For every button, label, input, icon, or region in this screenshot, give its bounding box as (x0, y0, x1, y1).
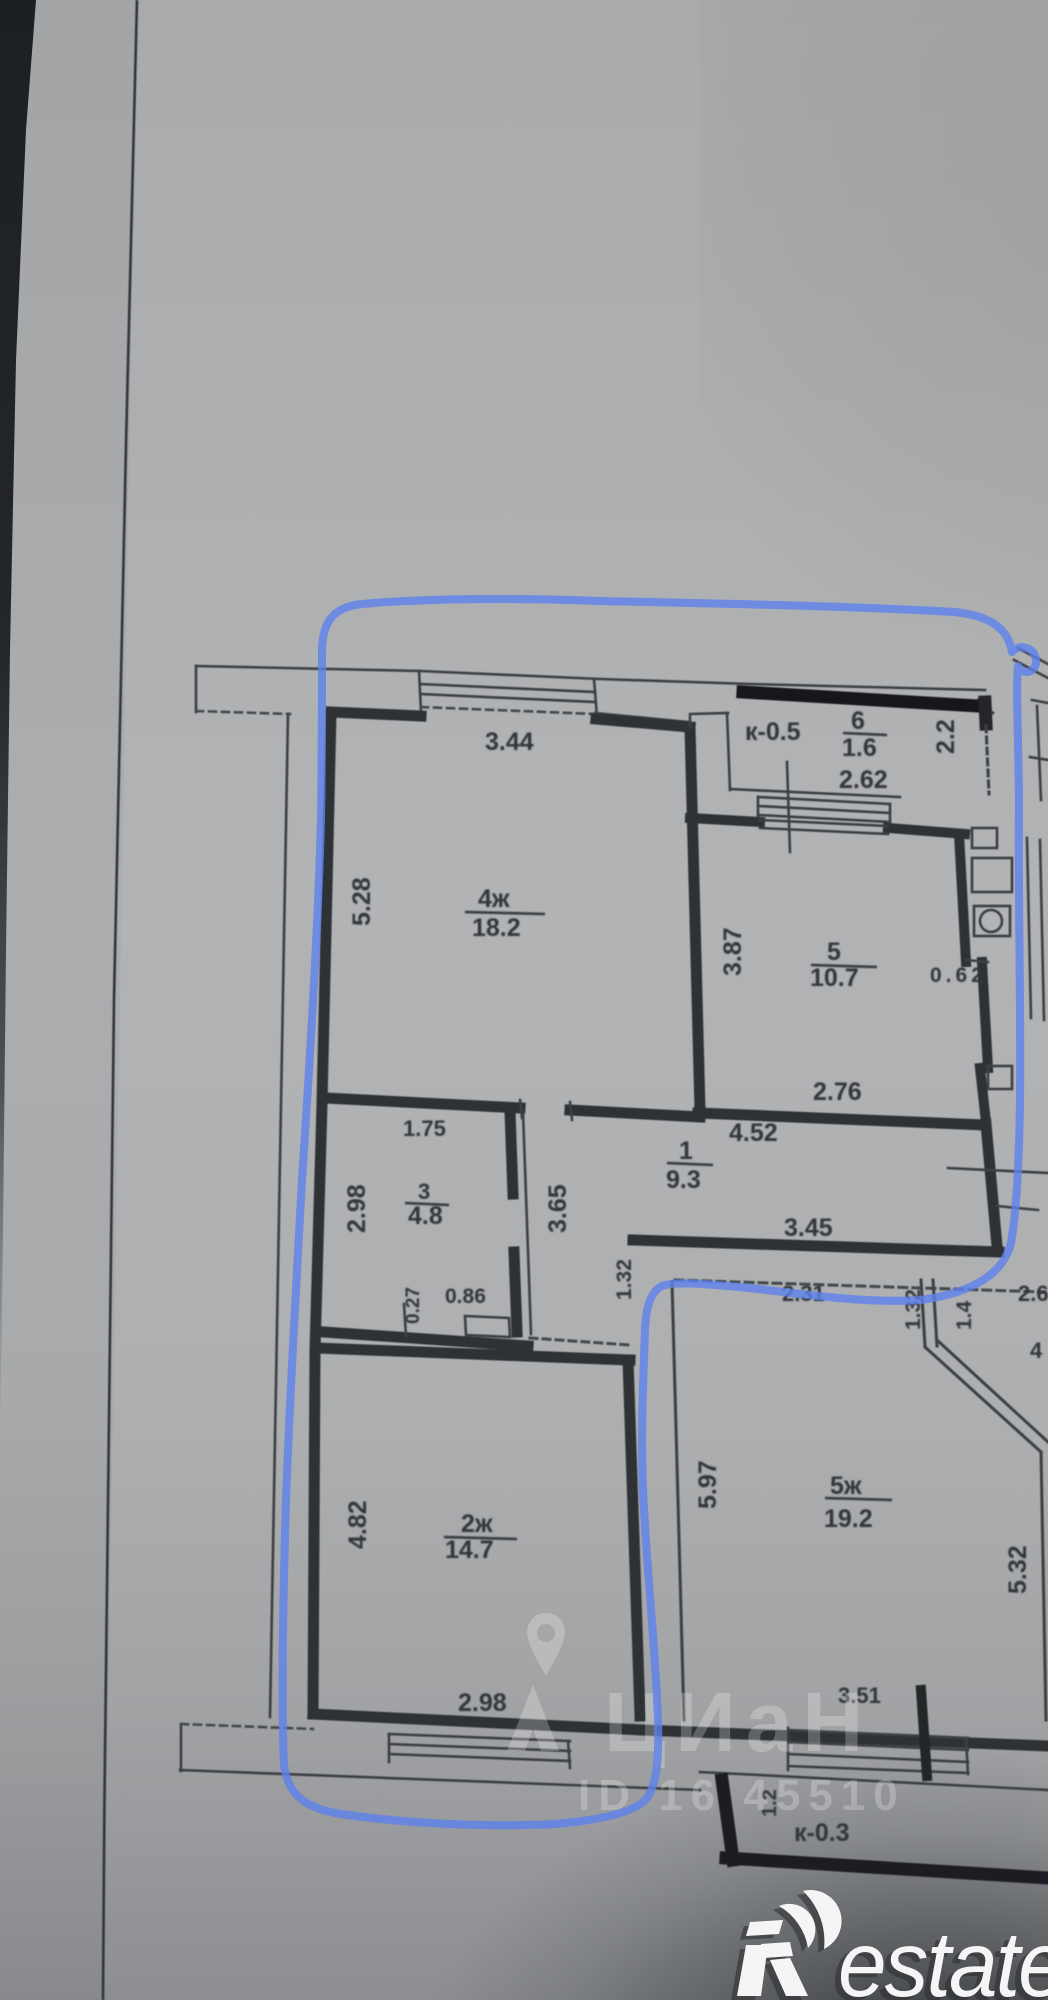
svg-text:1.6: 1.6 (842, 734, 877, 762)
svg-text:5.32: 5.32 (1004, 1545, 1032, 1594)
svg-text:0.27: 0.27 (403, 1287, 424, 1324)
svg-text:10.7: 10.7 (810, 964, 859, 992)
svg-text:1.4: 1.4 (953, 1300, 976, 1330)
svg-text:18.2: 18.2 (472, 914, 521, 942)
svg-text:к-0.5: к-0.5 (745, 718, 801, 746)
svg-text:4.82: 4.82 (344, 1500, 372, 1549)
svg-text:2.2: 2.2 (932, 719, 960, 754)
svg-text:2.98: 2.98 (458, 1689, 507, 1717)
svg-text:к-0.3: к-0.3 (794, 1819, 850, 1847)
svg-text:4: 4 (1030, 1338, 1043, 1363)
svg-text:5: 5 (827, 938, 841, 966)
svg-text:4ж: 4ж (478, 885, 510, 913)
svg-text:4.8: 4.8 (408, 1202, 443, 1230)
svg-text:2.62: 2.62 (839, 766, 888, 794)
svg-text:2.6: 2.6 (1018, 1281, 1048, 1306)
svg-text:1.32: 1.32 (613, 1259, 636, 1300)
svg-text:1: 1 (679, 1137, 693, 1165)
svg-text:2ж: 2ж (461, 1510, 493, 1538)
svg-text:5.28: 5.28 (348, 877, 376, 926)
svg-text:estate: estate (838, 1913, 1048, 2000)
svg-text:4.52: 4.52 (729, 1119, 778, 1147)
svg-text:3.65: 3.65 (544, 1184, 572, 1233)
svg-text:5ж: 5ж (830, 1472, 862, 1500)
svg-text:1.75: 1.75 (403, 1116, 446, 1141)
svg-text:6: 6 (851, 707, 865, 735)
svg-text:3.87: 3.87 (719, 927, 747, 976)
svg-text:3.44: 3.44 (485, 728, 534, 756)
svg-text:ЦИаН: ЦИаН (604, 1675, 873, 1769)
svg-text:3.45: 3.45 (784, 1214, 833, 1242)
svg-text:3: 3 (418, 1179, 430, 1204)
svg-text:19.2: 19.2 (824, 1505, 873, 1533)
svg-text:5.97: 5.97 (694, 1460, 722, 1509)
svg-text:0.62: 0.62 (930, 964, 987, 987)
svg-text:1.32: 1.32 (902, 1289, 925, 1330)
svg-text:0.86: 0.86 (445, 1285, 486, 1308)
svg-text:2.98: 2.98 (343, 1184, 371, 1233)
svg-text:9.3: 9.3 (666, 1166, 701, 1194)
svg-text:2.76: 2.76 (813, 1078, 862, 1106)
svg-text:14.7: 14.7 (445, 1536, 494, 1564)
